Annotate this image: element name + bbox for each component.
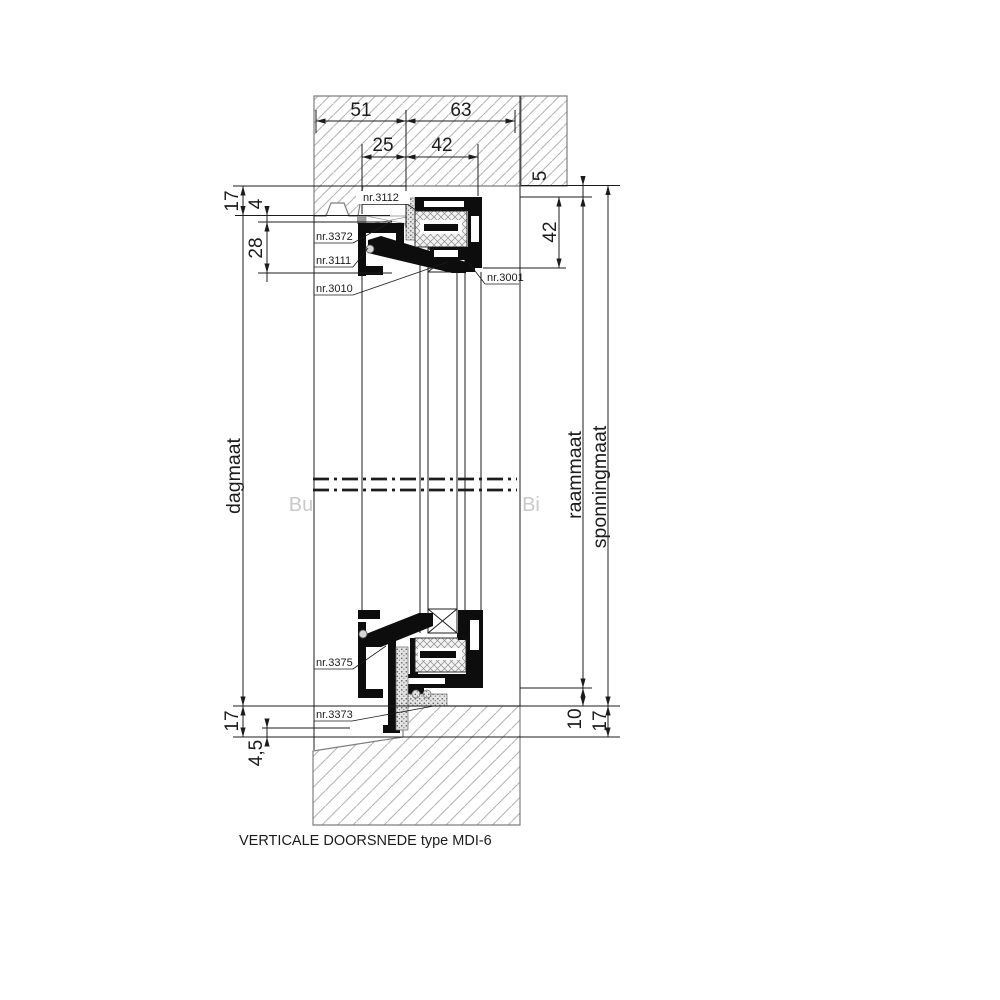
drawing-title: VERTICALE DOORSNEDE type MDI-6 xyxy=(239,833,492,849)
label-dagmaat: dagmaat xyxy=(223,437,245,513)
technical-drawing-canvas: 51 63 25 42 17 4 28 5 42 17 4,5 10 17 da… xyxy=(0,0,1000,1000)
seal-dot-bottom xyxy=(359,630,367,638)
kit-block-top xyxy=(357,216,366,224)
dim-height-4-5: 4,5 xyxy=(246,740,267,766)
dim-width-63: 63 xyxy=(450,100,471,121)
side-watermarks: Bu Bi xyxy=(289,494,540,516)
double-glazing-unit xyxy=(420,248,465,633)
dim-width-25: 25 xyxy=(372,135,393,156)
dim-width-51: 51 xyxy=(350,100,371,121)
watermark-outside-bu: Bu xyxy=(289,494,313,516)
glazing-clip-bottom xyxy=(458,610,466,640)
dim-height-5: 5 xyxy=(530,171,551,182)
dim-height-28: 28 xyxy=(246,237,267,258)
part-label-3372: nr.3372 xyxy=(316,231,353,243)
dim-height-17-top: 17 xyxy=(222,190,243,211)
label-raammaat: raammaat xyxy=(564,431,586,519)
dim-height-42: 42 xyxy=(540,221,561,242)
part-label-3001: nr.3001 xyxy=(487,272,524,284)
bottom-wall-sill-masonry xyxy=(313,706,520,825)
drawing-sheet: 51 63 25 42 17 4 28 5 42 17 4,5 10 17 da… xyxy=(0,0,1000,1000)
part-label-3111: nr.3111 xyxy=(316,255,351,267)
dim-height-4: 4 xyxy=(246,198,267,209)
part-label-3373: nr.3373 xyxy=(316,709,353,721)
measure-labels: dagmaat raammaat sponningmaat xyxy=(223,425,611,548)
frame-head-profile xyxy=(357,197,482,276)
dim-height-17-bottom-right: 17 xyxy=(590,710,611,731)
part-label-3112: nr.3112 xyxy=(363,192,399,204)
dim-height-10: 10 xyxy=(565,708,586,729)
part-label-3010: nr.3010 xyxy=(316,283,353,295)
part-label-3375: nr.3375 xyxy=(316,657,353,669)
break-lines xyxy=(313,479,517,490)
watermark-inside-bi: Bi xyxy=(522,494,540,516)
dim-width-42: 42 xyxy=(431,135,452,156)
dim-height-17-bottom-left: 17 xyxy=(222,710,243,731)
label-sponningmaat: sponningmaat xyxy=(589,425,611,548)
